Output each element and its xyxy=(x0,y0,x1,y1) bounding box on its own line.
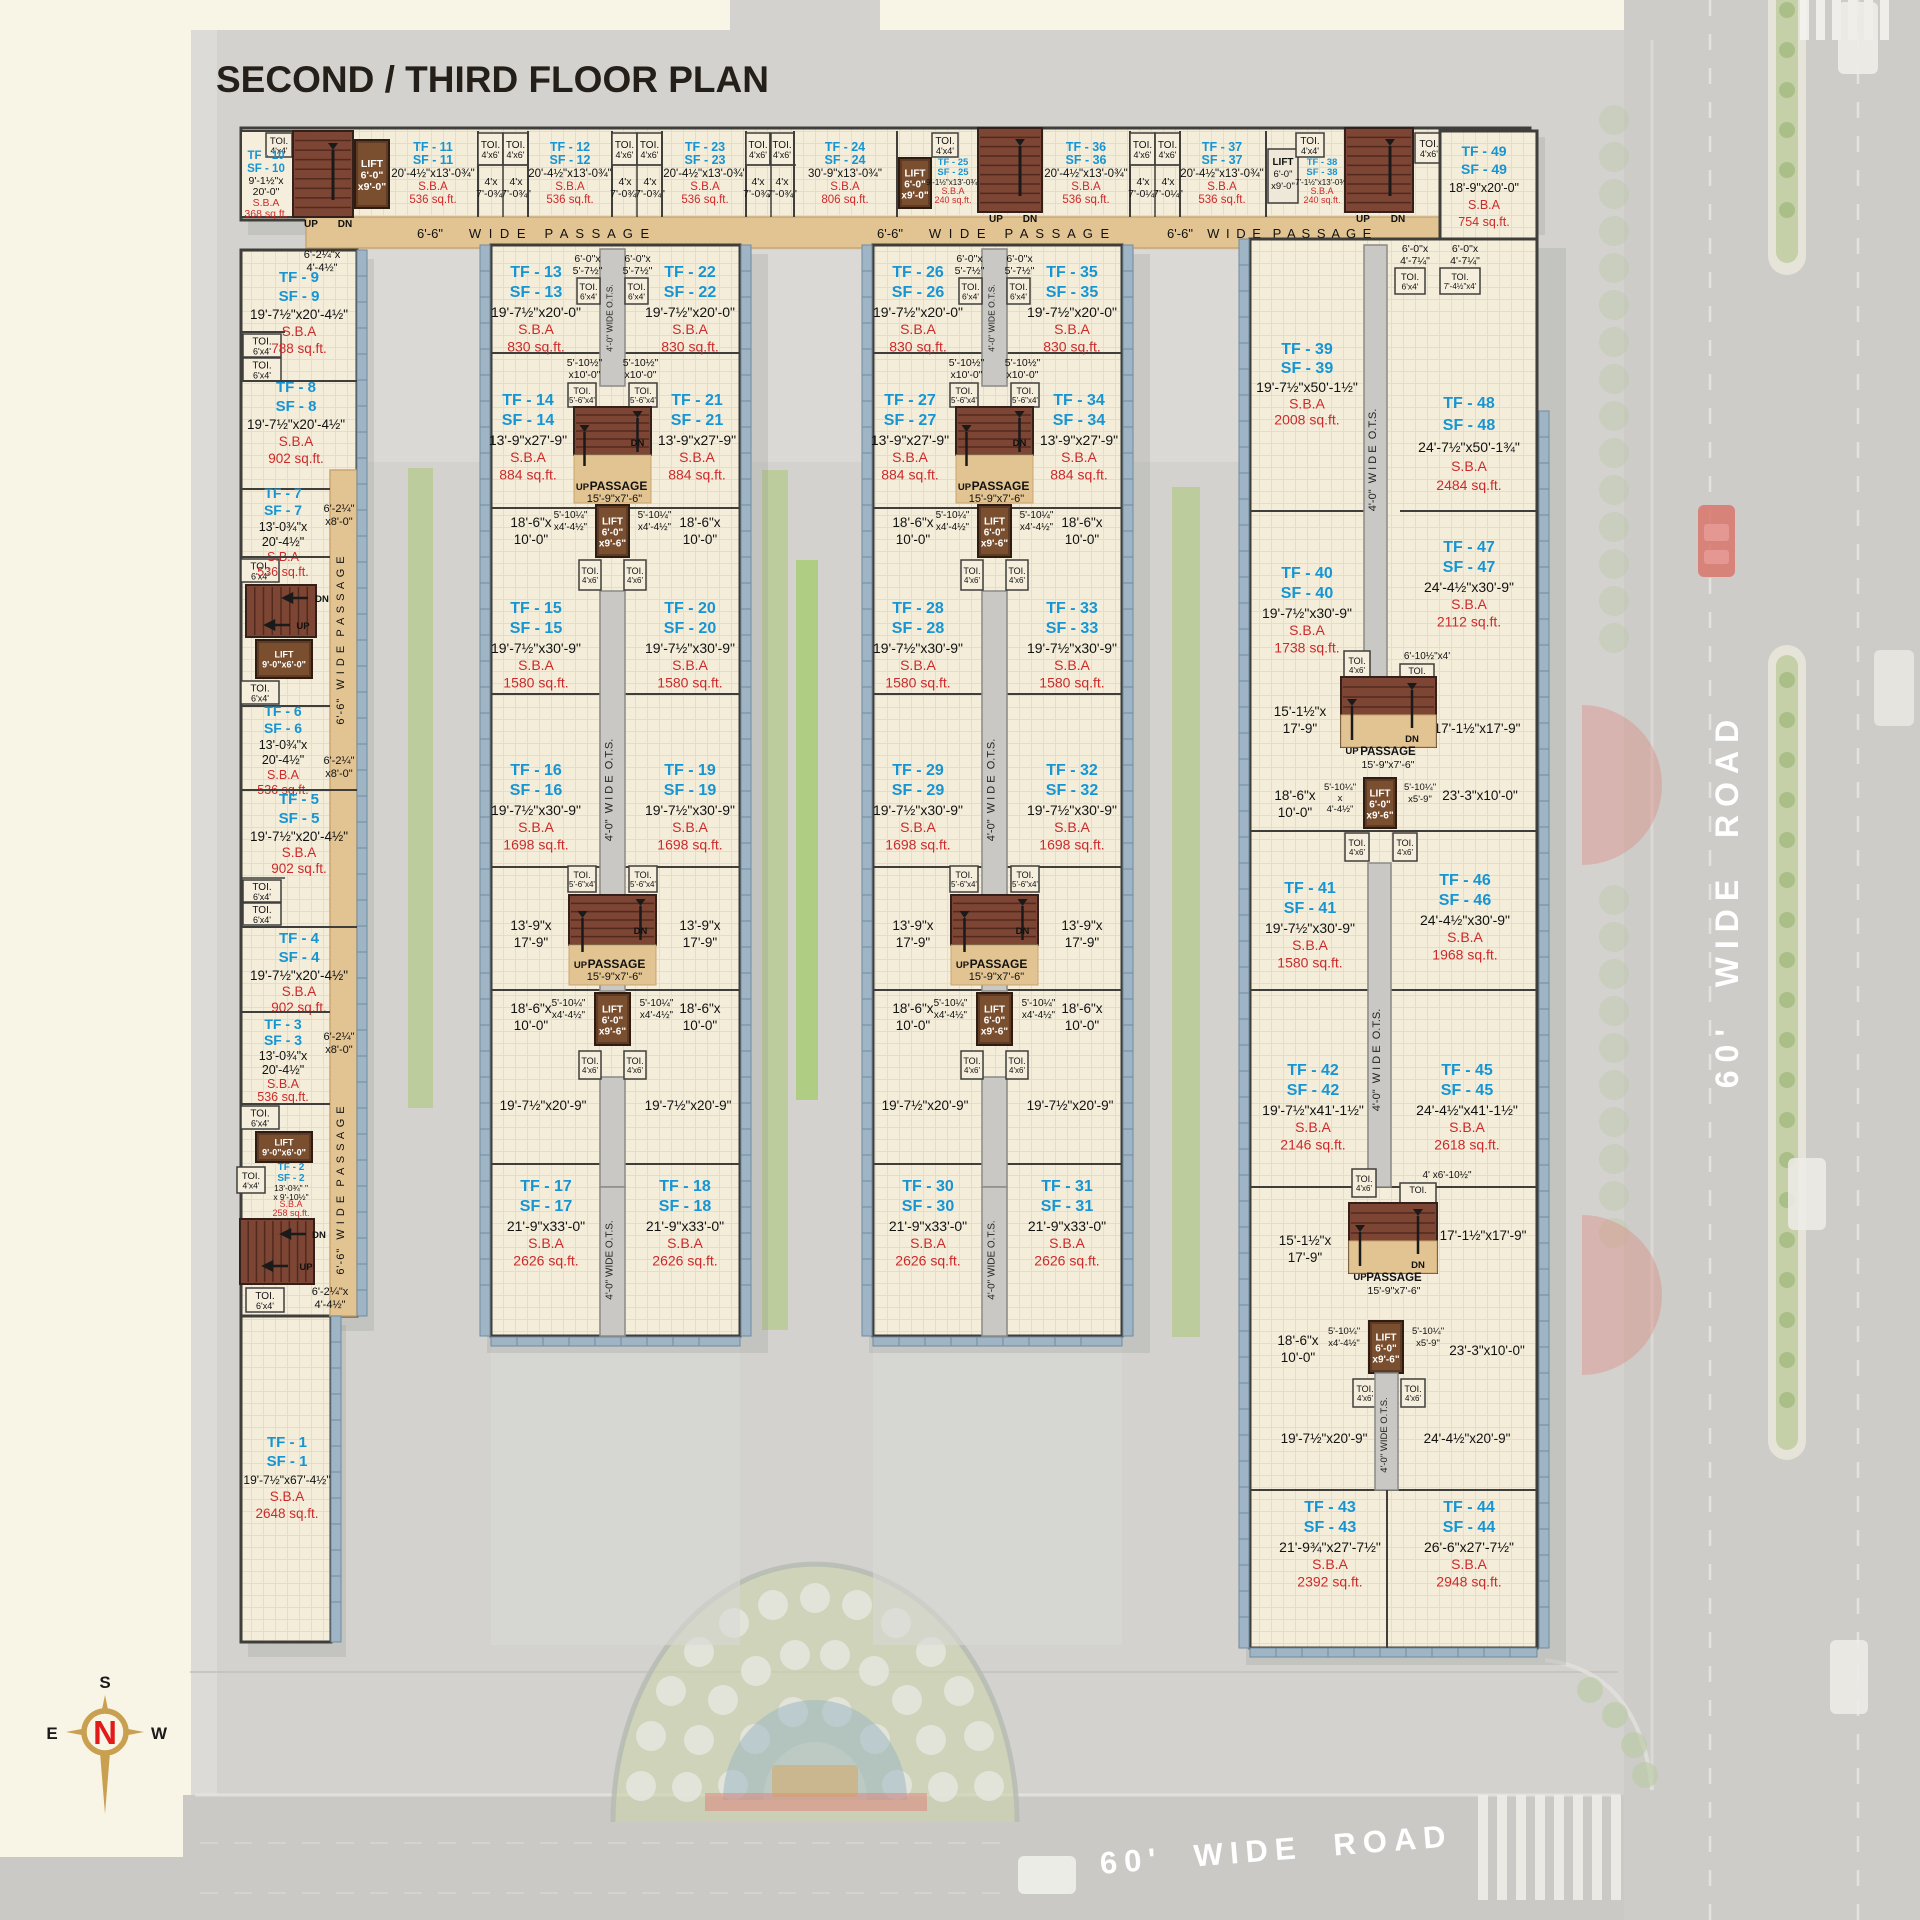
svg-text:TF - 32: TF - 32 xyxy=(1046,762,1098,779)
svg-text:6'-0"x: 6'-0"x xyxy=(574,253,601,265)
svg-text:TF - 11: TF - 11 xyxy=(413,140,453,154)
svg-text:10'-0": 10'-0" xyxy=(1065,1018,1100,1033)
svg-text:S.B.A: S.B.A xyxy=(830,181,860,193)
svg-text:S.B.A: S.B.A xyxy=(900,321,936,337)
svg-text:TOI.: TOI. xyxy=(1356,1384,1373,1394)
svg-text:S.B.A: S.B.A xyxy=(418,181,448,193)
svg-text:SF - 20: SF - 20 xyxy=(664,620,717,637)
svg-text:4'x6': 4'x6' xyxy=(1405,1394,1421,1403)
svg-text:1698 sq.ft.: 1698 sq.ft. xyxy=(885,836,950,852)
svg-text:S.B.A: S.B.A xyxy=(672,657,708,673)
svg-text:4'x6': 4'x6' xyxy=(616,150,634,160)
svg-text:1580 sq.ft.: 1580 sq.ft. xyxy=(1277,954,1342,970)
svg-text:S.B.A: S.B.A xyxy=(282,324,317,339)
svg-text:S.B.A: S.B.A xyxy=(1049,1235,1085,1251)
svg-text:6'-2¼": 6'-2¼" xyxy=(323,1031,354,1043)
svg-text:TOI.: TOI. xyxy=(581,1056,598,1066)
svg-text:6'-0"x: 6'-0"x xyxy=(1402,243,1429,255)
svg-text:6'x4': 6'x4' xyxy=(256,1301,274,1311)
svg-text:10'-0": 10'-0" xyxy=(683,1018,718,1033)
svg-text:21'-9"x33'-0": 21'-9"x33'-0" xyxy=(646,1218,724,1234)
svg-text:SF - 12: SF - 12 xyxy=(550,153,591,167)
svg-text:TF - 34: TF - 34 xyxy=(1053,392,1105,409)
svg-text:SF - 42: SF - 42 xyxy=(1287,1082,1340,1099)
svg-text:x8'-0": x8'-0" xyxy=(325,1044,352,1056)
svg-text:536 sq.ft.: 536 sq.ft. xyxy=(546,194,593,206)
svg-text:18'-6"x: 18'-6"x xyxy=(892,515,933,530)
svg-text:5'-10¼": 5'-10¼" xyxy=(1404,782,1436,793)
svg-text:4'x: 4'x xyxy=(643,176,657,188)
svg-text:TF - 33: TF - 33 xyxy=(1046,600,1098,617)
svg-text:19'-7½"x67'-4½": 19'-7½"x67'-4½" xyxy=(243,1473,330,1487)
svg-text:2626 sq.ft.: 2626 sq.ft. xyxy=(513,1252,578,1268)
svg-text:x4'-4½": x4'-4½" xyxy=(1020,522,1054,533)
svg-text:4'-7¼": 4'-7¼" xyxy=(1400,255,1430,267)
svg-text:SF - 16: SF - 16 xyxy=(510,782,563,799)
svg-text:4' x6'-10½": 4' x6'-10½" xyxy=(1422,1170,1472,1181)
svg-text:UP: UP xyxy=(1356,214,1370,225)
svg-text:SF - 7: SF - 7 xyxy=(264,502,302,518)
svg-text:884 sq.ft.: 884 sq.ft. xyxy=(668,466,726,482)
svg-text:2484 sq.ft.: 2484 sq.ft. xyxy=(1436,477,1501,493)
svg-text:UP: UP xyxy=(296,621,310,632)
svg-text:15'-1½"x: 15'-1½"x xyxy=(1279,1233,1332,1248)
svg-text:N: N xyxy=(93,1714,117,1751)
svg-text:4'-0" WIDE O.T.S.: 4'-0" WIDE O.T.S. xyxy=(987,284,997,351)
svg-text:6'x4': 6'x4' xyxy=(253,892,271,902)
svg-text:TF - 5: TF - 5 xyxy=(279,791,319,808)
svg-text:830 sq.ft.: 830 sq.ft. xyxy=(507,338,565,354)
svg-text:13'-9"x: 13'-9"x xyxy=(892,918,933,933)
svg-text:SF - 29: SF - 29 xyxy=(892,782,945,799)
svg-text:TF - 6: TF - 6 xyxy=(264,703,302,719)
svg-text:TOI.: TOI. xyxy=(1355,1174,1372,1184)
svg-text:24'-4½"x20'-9": 24'-4½"x20'-9" xyxy=(1424,1431,1511,1446)
svg-text:x9'-0": x9'-0" xyxy=(358,181,387,193)
svg-text:19'-7½"x20'-9": 19'-7½"x20'-9" xyxy=(500,1098,587,1113)
svg-text:5'-6"x4': 5'-6"x4' xyxy=(951,880,977,889)
svg-text:5'-10¼": 5'-10¼" xyxy=(1412,1326,1444,1337)
svg-text:x9'-6": x9'-6" xyxy=(981,1027,1008,1038)
svg-text:LIFT: LIFT xyxy=(1272,157,1293,168)
svg-text:19'-7½"x20'-9": 19'-7½"x20'-9" xyxy=(1027,1098,1114,1113)
svg-text:x9'-6": x9'-6" xyxy=(599,539,626,550)
svg-text:19'-7½"x30'-9": 19'-7½"x30'-9" xyxy=(645,640,735,656)
svg-text:x10'-0": x10'-0" xyxy=(1007,369,1039,381)
svg-text:x4'-4½": x4'-4½" xyxy=(554,522,588,533)
svg-text:S.B.A: S.B.A xyxy=(270,1489,305,1504)
svg-text:DN: DN xyxy=(338,219,352,230)
svg-text:UP: UP xyxy=(299,1262,313,1273)
svg-text:TOI.: TOI. xyxy=(1348,838,1365,848)
svg-text:SF - 26: SF - 26 xyxy=(892,284,945,301)
svg-text:6'-0": 6'-0" xyxy=(361,170,384,182)
svg-text:x9'-6": x9'-6" xyxy=(1372,1355,1399,1366)
svg-text:4'-0" W I D E O.T.S.: 4'-0" W I D E O.T.S. xyxy=(604,739,616,842)
svg-text:LIFT: LIFT xyxy=(904,169,925,180)
svg-text:10'-0": 10'-0" xyxy=(514,1018,549,1033)
svg-text:4'-4½": 4'-4½" xyxy=(1327,804,1354,815)
svg-text:6'x4': 6'x4' xyxy=(1010,292,1027,302)
svg-text:x4'-4½": x4'-4½" xyxy=(936,522,970,533)
svg-text:4'-0" W I D E O.T.S.: 4'-0" W I D E O.T.S. xyxy=(1371,1009,1383,1112)
svg-text:SF - 23: SF - 23 xyxy=(685,153,726,167)
svg-text:754 sq.ft.: 754 sq.ft. xyxy=(1458,215,1509,229)
svg-text:60' WIDE ROAD: 60' WIDE ROAD xyxy=(1709,712,1745,1089)
svg-text:23'-3"x10'-0": 23'-3"x10'-0" xyxy=(1442,788,1518,803)
svg-text:LIFT: LIFT xyxy=(984,517,1005,528)
svg-text:4'x6': 4'x6' xyxy=(964,576,980,585)
svg-text:TF - 21: TF - 21 xyxy=(671,392,723,409)
svg-text:TF - 13: TF - 13 xyxy=(510,264,562,281)
svg-text:LIFT: LIFT xyxy=(602,1005,623,1016)
svg-text:TF - 20: TF - 20 xyxy=(664,600,716,617)
svg-text:536 sq.ft.: 536 sq.ft. xyxy=(1198,194,1245,206)
svg-text:19'-7½"x30'-9": 19'-7½"x30'-9" xyxy=(1262,605,1352,621)
svg-text:258 sq.ft.: 258 sq.ft. xyxy=(272,1208,309,1218)
svg-text:TF - 7: TF - 7 xyxy=(264,485,302,501)
svg-text:TOI.: TOI. xyxy=(1348,656,1365,666)
svg-text:x9'-6": x9'-6" xyxy=(599,1027,626,1038)
svg-text:SF - 17: SF - 17 xyxy=(520,1198,573,1215)
svg-text:4'-7¼": 4'-7¼" xyxy=(1450,255,1480,267)
svg-text:S.B.A: S.B.A xyxy=(1449,1119,1485,1135)
svg-text:1580 sq.ft.: 1580 sq.ft. xyxy=(503,674,568,690)
svg-text:21'-9"x33'-0": 21'-9"x33'-0" xyxy=(507,1218,585,1234)
svg-text:LIFT: LIFT xyxy=(275,1138,294,1148)
svg-text:SF - 27: SF - 27 xyxy=(884,412,937,429)
svg-text:TF - 23: TF - 23 xyxy=(685,140,725,154)
svg-text:PASSAGE: PASSAGE xyxy=(588,957,646,971)
svg-text:5'-10½": 5'-10½" xyxy=(623,357,659,369)
svg-text:20'-4½": 20'-4½" xyxy=(262,535,304,549)
svg-text:SF - 21: SF - 21 xyxy=(671,412,724,429)
svg-text:DN: DN xyxy=(1016,926,1030,937)
svg-text:TOI.: TOI. xyxy=(581,566,598,576)
svg-text:7'-0¾": 7'-0¾" xyxy=(635,188,665,200)
svg-text:18'-9"x20'-0": 18'-9"x20'-0" xyxy=(1449,181,1519,195)
svg-text:UP: UP xyxy=(989,214,1003,225)
svg-text:TOI.: TOI. xyxy=(1016,386,1033,396)
svg-text:15'-9"x7'-6": 15'-9"x7'-6" xyxy=(587,971,643,983)
svg-text:830 sq.ft.: 830 sq.ft. xyxy=(1043,338,1101,354)
svg-text:18'-6"x: 18'-6"x xyxy=(892,1001,933,1016)
svg-text:19'-7½"x30'-9": 19'-7½"x30'-9" xyxy=(491,802,581,818)
svg-text:SF - 36: SF - 36 xyxy=(1066,153,1107,167)
svg-text:SF - 30: SF - 30 xyxy=(902,1198,955,1215)
svg-text:24'-7½"x50'-1¾": 24'-7½"x50'-1¾" xyxy=(1418,439,1520,455)
svg-text:TOI.: TOI. xyxy=(1008,566,1025,576)
svg-text:10'-0": 10'-0" xyxy=(1281,1350,1316,1365)
svg-text:4'x6': 4'x6' xyxy=(1134,150,1152,160)
svg-text:UP: UP xyxy=(956,960,970,971)
svg-text:x4'-4½": x4'-4½" xyxy=(640,1010,674,1021)
svg-text:4'x6': 4'x6' xyxy=(1009,1066,1025,1075)
svg-text:TF - 41: TF - 41 xyxy=(1284,880,1336,897)
svg-text:4'x: 4'x xyxy=(751,176,765,188)
svg-text:PASSAGE: PASSAGE xyxy=(1366,1272,1422,1284)
svg-text:DN: DN xyxy=(1405,734,1419,745)
svg-text:TOI.: TOI. xyxy=(1408,666,1425,676)
svg-text:x5'-9": x5'-9" xyxy=(1408,794,1432,805)
svg-text:6'x4': 6'x4' xyxy=(1402,282,1419,292)
svg-text:6'-0": 6'-0" xyxy=(602,528,624,539)
svg-text:4'x6': 4'x6' xyxy=(1159,150,1177,160)
svg-text:10'-0": 10'-0" xyxy=(683,532,718,547)
svg-text:9'-0"x6'-0": 9'-0"x6'-0" xyxy=(262,660,306,670)
svg-text:4'x6': 4'x6' xyxy=(482,150,500,160)
svg-text:6'-6": 6'-6" xyxy=(877,226,903,241)
svg-text:15'-9"x7'-6": 15'-9"x7'-6" xyxy=(1362,759,1415,771)
svg-text:DN: DN xyxy=(1023,214,1037,225)
svg-text:4'x: 4'x xyxy=(775,176,789,188)
svg-text:17'-9": 17'-9" xyxy=(1065,935,1100,950)
svg-text:5'-6"x4': 5'-6"x4' xyxy=(569,880,595,889)
svg-text:TF - 15: TF - 15 xyxy=(510,600,562,617)
svg-text:368 sq.ft.: 368 sq.ft. xyxy=(244,208,287,220)
svg-text:6'x4': 6'x4' xyxy=(628,292,645,302)
svg-text:SF - 43: SF - 43 xyxy=(1304,1519,1357,1536)
svg-text:S.B.A: S.B.A xyxy=(1054,819,1090,835)
svg-text:TF - 1: TF - 1 xyxy=(267,1434,307,1451)
svg-text:4'x4': 4'x4' xyxy=(936,146,954,156)
svg-text:20'-4½": 20'-4½" xyxy=(262,753,304,767)
svg-text:S.B.A: S.B.A xyxy=(910,1235,946,1251)
svg-text:26'-6"x27'-7½": 26'-6"x27'-7½" xyxy=(1424,1539,1514,1555)
svg-text:19'-7½"x20'-0": 19'-7½"x20'-0" xyxy=(491,304,581,320)
svg-text:20'-4½"x13'-0¾": 20'-4½"x13'-0¾" xyxy=(391,168,475,180)
svg-text:19'-7½"x20'-4½": 19'-7½"x20'-4½" xyxy=(247,417,345,432)
svg-text:13'-9"x27'-9": 13'-9"x27'-9" xyxy=(1040,432,1118,448)
svg-text:5'-6"x4': 5'-6"x4' xyxy=(1012,880,1038,889)
svg-text:19'-7½"x30'-9": 19'-7½"x30'-9" xyxy=(645,802,735,818)
svg-text:830 sq.ft.: 830 sq.ft. xyxy=(889,338,947,354)
svg-text:5'-10¼": 5'-10¼" xyxy=(1020,509,1054,521)
svg-text:4'-0" WIDE O.T.S.: 4'-0" WIDE O.T.S. xyxy=(605,284,615,351)
svg-text:TOI.: TOI. xyxy=(963,566,980,576)
svg-text:S.B.A: S.B.A xyxy=(900,819,936,835)
svg-text:LIFT: LIFT xyxy=(984,1005,1005,1016)
svg-text:5'-6"x4': 5'-6"x4' xyxy=(630,880,656,889)
svg-text:UP: UP xyxy=(1345,746,1359,757)
svg-text:15'-9"x7'-6": 15'-9"x7'-6" xyxy=(587,493,643,505)
svg-text:2648 sq.ft.: 2648 sq.ft. xyxy=(255,1506,318,1521)
svg-text:S.B.A: S.B.A xyxy=(690,181,720,193)
svg-text:21'-9"x33'-0": 21'-9"x33'-0" xyxy=(1028,1218,1106,1234)
svg-text:13'-9"x: 13'-9"x xyxy=(510,918,551,933)
svg-text:PASSAGE: PASSAGE xyxy=(1360,746,1416,758)
svg-text:4'-4½": 4'-4½" xyxy=(314,1299,345,1311)
svg-text:x4'-4½": x4'-4½" xyxy=(934,1010,968,1021)
svg-text:9'-0"x6'-0": 9'-0"x6'-0" xyxy=(262,1148,306,1158)
svg-text:S.B.A: S.B.A xyxy=(279,434,314,449)
svg-text:x4'-4½": x4'-4½" xyxy=(552,1010,586,1021)
svg-text:18'-6"x: 18'-6"x xyxy=(679,515,720,530)
svg-text:5'-10¼": 5'-10¼" xyxy=(934,997,968,1009)
svg-text:PASSAGE: PASSAGE xyxy=(972,479,1030,493)
svg-text:6'-0": 6'-0" xyxy=(1369,800,1391,811)
svg-text:TOI.: TOI. xyxy=(573,386,590,396)
svg-text:S.B.A: S.B.A xyxy=(1289,395,1325,411)
svg-text:4'x6': 4'x6' xyxy=(1357,1394,1373,1403)
svg-text:18'-6"x: 18'-6"x xyxy=(1061,515,1102,530)
svg-text:17'-9": 17'-9" xyxy=(683,935,718,950)
svg-text:5'-10¼": 5'-10¼" xyxy=(1328,1326,1360,1337)
svg-text:SF - 18: SF - 18 xyxy=(659,1198,712,1215)
svg-text:TOI.: TOI. xyxy=(634,386,651,396)
svg-text:6'x4': 6'x4' xyxy=(962,292,979,302)
svg-text:5'-6"x4': 5'-6"x4' xyxy=(951,396,977,405)
svg-text:6'x4': 6'x4' xyxy=(580,292,597,302)
svg-text:6'-0": 6'-0" xyxy=(602,1016,624,1027)
svg-text:19'-7½"x20'-4½": 19'-7½"x20'-4½" xyxy=(250,307,348,322)
svg-text:4'x6': 4'x6' xyxy=(1420,149,1438,159)
svg-text:18'-6"x: 18'-6"x xyxy=(679,1001,720,1016)
svg-text:4'x6': 4'x6' xyxy=(749,150,767,160)
svg-text:15'-9"x7'-6": 15'-9"x7'-6" xyxy=(969,493,1025,505)
svg-text:2146 sq.ft.: 2146 sq.ft. xyxy=(1280,1136,1345,1152)
svg-text:x9'-0": x9'-0" xyxy=(901,191,928,202)
svg-text:SF - 25: SF - 25 xyxy=(937,167,969,178)
svg-text:10'-0": 10'-0" xyxy=(514,532,549,547)
svg-text:UP: UP xyxy=(958,482,972,493)
svg-text:19'-7½"x20'-0": 19'-7½"x20'-0" xyxy=(1027,304,1117,320)
svg-text:5'-6"x4': 5'-6"x4' xyxy=(569,396,595,405)
svg-text:x9'-0": x9'-0" xyxy=(1271,181,1295,192)
svg-text:x4'-4½": x4'-4½" xyxy=(638,522,672,533)
svg-text:S.B.A: S.B.A xyxy=(282,984,317,999)
svg-text:x9'-6": x9'-6" xyxy=(981,539,1008,550)
svg-text:17'-1½"x17'-9": 17'-1½"x17'-9" xyxy=(1440,1228,1527,1243)
svg-text:S.B.A: S.B.A xyxy=(1054,657,1090,673)
svg-text:6'-0": 6'-0" xyxy=(984,528,1006,539)
svg-text:SF - 9: SF - 9 xyxy=(279,288,320,305)
svg-text:SF - 1: SF - 1 xyxy=(267,1453,308,1470)
svg-text:6'-0"x: 6'-0"x xyxy=(956,253,983,265)
svg-text:TOI.: TOI. xyxy=(1404,1384,1421,1394)
svg-text:6'-0"x: 6'-0"x xyxy=(624,253,651,265)
svg-text:536 sq.ft.: 536 sq.ft. xyxy=(681,194,728,206)
svg-text:x5'-9": x5'-9" xyxy=(1416,1338,1440,1349)
svg-text:4'x: 4'x xyxy=(1161,176,1175,188)
svg-text:S.B.A: S.B.A xyxy=(679,449,715,465)
svg-text:5'-10¼": 5'-10¼" xyxy=(1022,997,1056,1009)
svg-text:19'-7½"x20'-4½": 19'-7½"x20'-4½" xyxy=(250,829,348,844)
svg-text:4'-4½": 4'-4½" xyxy=(306,262,337,274)
svg-text:SF - 41: SF - 41 xyxy=(1284,900,1337,917)
svg-text:6'x4': 6'x4' xyxy=(253,371,271,381)
svg-text:4'x6': 4'x6' xyxy=(627,576,643,585)
svg-text:S.B.A: S.B.A xyxy=(518,321,554,337)
svg-text:SF - 32: SF - 32 xyxy=(1046,782,1099,799)
svg-text:S.B.A: S.B.A xyxy=(282,845,317,860)
svg-text:W I D E P A S S A G E: W I D E P A S S A G E xyxy=(469,226,651,241)
svg-text:S.B.A: S.B.A xyxy=(672,819,708,835)
svg-text:13'-0¾"x: 13'-0¾"x xyxy=(259,520,308,534)
svg-text:19'-7½"x20'-4½": 19'-7½"x20'-4½" xyxy=(250,968,348,983)
svg-text:6'-6" W I D E P A S S A G E: 6'-6" W I D E P A S S A G E xyxy=(335,555,347,724)
svg-text:TF - 35: TF - 35 xyxy=(1046,264,1098,281)
svg-text:4'x6': 4'x6' xyxy=(964,1066,980,1075)
svg-text:SF - 39: SF - 39 xyxy=(1281,360,1334,377)
svg-text:SF - 46: SF - 46 xyxy=(1439,892,1492,909)
svg-text:2112 sq.ft.: 2112 sq.ft. xyxy=(1437,613,1501,629)
svg-text:S.B.A: S.B.A xyxy=(1312,1556,1348,1572)
svg-text:20'-4½"x13'-0¾": 20'-4½"x13'-0¾" xyxy=(528,168,612,180)
svg-text:TOI.: TOI. xyxy=(1008,1056,1025,1066)
svg-text:SF - 6: SF - 6 xyxy=(264,720,302,736)
svg-text:536 sq.ft.: 536 sq.ft. xyxy=(257,1090,308,1104)
svg-text:13'-0¾"x: 13'-0¾"x xyxy=(259,738,308,752)
svg-text:15'-1½"x: 15'-1½"x xyxy=(1274,704,1327,719)
svg-text:S.B.A: S.B.A xyxy=(1071,181,1101,193)
svg-text:6'-6": 6'-6" xyxy=(417,226,443,241)
svg-text:2626 sq.ft.: 2626 sq.ft. xyxy=(1034,1252,1099,1268)
svg-text:TF - 42: TF - 42 xyxy=(1287,1062,1339,1079)
svg-text:SF - 19: SF - 19 xyxy=(664,782,717,799)
svg-text:1580 sq.ft.: 1580 sq.ft. xyxy=(657,674,722,690)
svg-text:1698 sq.ft.: 1698 sq.ft. xyxy=(1039,836,1104,852)
svg-text:1738 sq.ft.: 1738 sq.ft. xyxy=(1274,639,1339,655)
svg-text:SF - 8: SF - 8 xyxy=(276,398,317,415)
svg-text:5'-6"x4': 5'-6"x4' xyxy=(1012,396,1038,405)
svg-text:SF - 14: SF - 14 xyxy=(502,412,555,429)
svg-text:DN: DN xyxy=(631,438,645,449)
svg-text:17'-1½"x17'-9": 17'-1½"x17'-9" xyxy=(1434,721,1521,736)
svg-text:24'-4½"x41'-1½": 24'-4½"x41'-1½" xyxy=(1416,1102,1518,1118)
svg-text:5'-7½": 5'-7½" xyxy=(573,265,603,277)
svg-text:536 sq.ft.: 536 sq.ft. xyxy=(1062,194,1109,206)
svg-text:19'-7½"x20'-9": 19'-7½"x20'-9" xyxy=(645,1098,732,1113)
svg-text:SECOND / THIRD FLOOR PLAN: SECOND / THIRD FLOOR PLAN xyxy=(216,59,769,100)
svg-text:1698 sq.ft.: 1698 sq.ft. xyxy=(657,836,722,852)
svg-text:884 sq.ft.: 884 sq.ft. xyxy=(881,466,939,482)
svg-text:6'-0": 6'-0" xyxy=(1375,1344,1397,1355)
svg-text:SF - 10: SF - 10 xyxy=(247,163,285,175)
svg-text:4'x: 4'x xyxy=(1136,176,1150,188)
svg-text:W I D E P A S S A G E: W I D E P A S S A G E xyxy=(929,226,1111,241)
svg-text:x4'-4½": x4'-4½" xyxy=(1022,1010,1056,1021)
svg-text:1968 sq.ft.: 1968 sq.ft. xyxy=(1432,946,1497,962)
svg-text:UP: UP xyxy=(304,219,318,230)
svg-text:TF - 43: TF - 43 xyxy=(1304,1499,1356,1516)
svg-text:19'-7½"x50'-1½": 19'-7½"x50'-1½" xyxy=(1256,379,1358,395)
svg-text:S.B.A: S.B.A xyxy=(1061,449,1097,465)
svg-text:19'-7½"x30'-9": 19'-7½"x30'-9" xyxy=(873,640,963,656)
svg-text:4'x6': 4'x6' xyxy=(1397,848,1413,857)
svg-text:S.B.A: S.B.A xyxy=(267,1077,300,1091)
svg-text:x4'-4½": x4'-4½" xyxy=(1328,1338,1360,1349)
svg-text:DN: DN xyxy=(315,594,329,605)
svg-text:5'-10¼": 5'-10¼" xyxy=(554,509,588,521)
svg-text:x10'-0": x10'-0" xyxy=(951,369,983,381)
svg-text:SF - 37: SF - 37 xyxy=(1202,153,1243,167)
svg-text:5'-10½": 5'-10½" xyxy=(949,357,985,369)
svg-text:2626 sq.ft.: 2626 sq.ft. xyxy=(895,1252,960,1268)
svg-text:S.B.A: S.B.A xyxy=(1054,321,1090,337)
svg-text:DN: DN xyxy=(1411,1260,1425,1271)
svg-text:SF - 47: SF - 47 xyxy=(1443,559,1496,576)
svg-text:x10'-0": x10'-0" xyxy=(625,369,657,381)
svg-text:240 sq.ft.: 240 sq.ft. xyxy=(1303,195,1340,205)
svg-text:SF - 40: SF - 40 xyxy=(1281,585,1334,602)
svg-text:S.B.A: S.B.A xyxy=(1289,622,1325,638)
svg-text:5'-10¼": 5'-10¼" xyxy=(640,997,674,1009)
svg-text:DN: DN xyxy=(1391,214,1405,225)
svg-text:SF - 15: SF - 15 xyxy=(510,620,563,637)
svg-text:21'-9¾"x27'-7½": 21'-9¾"x27'-7½" xyxy=(1279,1539,1381,1555)
svg-text:S.B.A: S.B.A xyxy=(1451,596,1487,612)
